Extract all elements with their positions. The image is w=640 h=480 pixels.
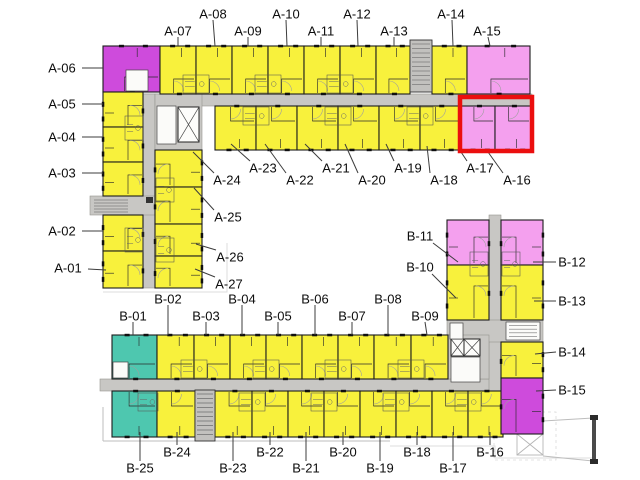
unit-label-B-18: B-18	[403, 445, 430, 460]
window-tick	[400, 45, 405, 48]
window-tick	[170, 45, 175, 48]
window-tick	[154, 271, 157, 276]
window-tick	[350, 45, 355, 48]
window-tick	[500, 359, 503, 364]
window-tick	[125, 334, 130, 337]
unit-B-15[interactable]	[501, 378, 543, 434]
window-tick	[201, 233, 204, 238]
window-tick	[221, 45, 226, 48]
window-tick	[542, 417, 545, 422]
window-tick	[448, 93, 453, 96]
window-tick	[143, 45, 148, 48]
unit-label-A-03: A-03	[48, 166, 75, 181]
unit-label-A-17: A-17	[466, 161, 493, 176]
unit-label-B-19: B-19	[366, 461, 393, 476]
unit-B-18[interactable]	[396, 391, 432, 437]
window-tick	[168, 436, 173, 439]
unit-label-A-24: A-24	[213, 173, 240, 188]
window-tick	[398, 105, 403, 108]
window-tick	[125, 436, 130, 439]
window-tick	[428, 378, 433, 381]
unit-A-17[interactable]	[461, 106, 495, 150]
window-tick	[278, 45, 283, 48]
unit-B-09[interactable]	[411, 335, 448, 379]
window-tick	[102, 186, 105, 191]
window-tick	[385, 436, 390, 439]
window-tick	[247, 378, 252, 381]
unit-B-24[interactable]	[157, 391, 195, 437]
unit-label-B-14: B-14	[558, 345, 585, 360]
unit-A-08[interactable]	[196, 46, 232, 94]
window-tick	[154, 167, 157, 172]
window-tick	[244, 149, 249, 152]
window-tick	[457, 45, 462, 48]
window-tick	[102, 172, 105, 177]
window-tick	[201, 265, 204, 270]
unit-label-A-15: A-15	[473, 24, 500, 39]
unit-A-16[interactable]	[495, 106, 531, 150]
corridor	[143, 94, 155, 288]
unit-B-25[interactable]	[112, 391, 157, 437]
window-tick	[285, 149, 290, 152]
window-tick	[327, 334, 332, 337]
window-tick	[174, 378, 179, 381]
window-tick	[484, 390, 489, 393]
window-tick	[406, 436, 411, 439]
window-tick	[277, 436, 282, 439]
window-tick	[102, 261, 105, 266]
unit-label-B-05: B-05	[264, 309, 291, 324]
window-tick	[262, 436, 267, 439]
service-room	[113, 362, 128, 378]
unit-label-A-16: A-16	[503, 173, 530, 188]
window-tick	[392, 93, 397, 96]
window-tick	[442, 45, 447, 48]
unit-B-23[interactable]	[215, 391, 252, 437]
unit-label-B-04: B-04	[228, 292, 255, 307]
unit-label-A-20: A-20	[358, 173, 385, 188]
window-tick	[142, 108, 145, 113]
unit-A-19[interactable]	[379, 106, 420, 150]
unit-label-A-05: A-05	[48, 97, 75, 112]
unit-B-12[interactable]	[501, 220, 543, 265]
unit-B-10[interactable]	[447, 265, 489, 320]
unit-label-A-01: A-01	[54, 261, 81, 276]
window-tick	[102, 117, 105, 122]
unit-A-22[interactable]	[256, 106, 297, 150]
window-tick	[512, 105, 517, 108]
unit-label-A-14: A-14	[437, 7, 464, 22]
unit-label-B-09: B-09	[411, 309, 438, 324]
window-tick	[357, 93, 362, 96]
unit-A-03[interactable]	[103, 162, 143, 196]
window-tick	[437, 334, 442, 337]
unit-A-14[interactable]	[432, 46, 467, 94]
window-tick	[225, 436, 230, 439]
window-tick	[102, 240, 105, 245]
window-tick	[241, 436, 246, 439]
window-tick	[329, 45, 334, 48]
service-room	[450, 323, 463, 339]
window-tick	[500, 241, 503, 246]
window-tick	[305, 390, 310, 393]
walkway-door	[146, 197, 153, 203]
window-tick	[242, 45, 247, 48]
window-tick	[542, 280, 545, 285]
unit-B-16[interactable]	[468, 391, 503, 437]
unit-label-B-08: B-08	[374, 292, 401, 307]
unit-label-B-13: B-13	[558, 294, 585, 309]
unit-label-B-02: B-02	[154, 292, 181, 307]
window-tick	[211, 378, 216, 381]
window-tick	[269, 390, 274, 393]
window-tick	[321, 93, 326, 96]
unit-A-15[interactable]	[467, 46, 530, 94]
window-tick	[201, 213, 204, 218]
window-tick	[431, 149, 436, 152]
unit-A-24[interactable]	[155, 150, 202, 187]
window-tick	[446, 233, 449, 238]
window-tick	[349, 436, 354, 439]
window-tick	[341, 390, 346, 393]
unit-label-A-25: A-25	[214, 210, 241, 225]
unit-B-05[interactable]	[266, 335, 302, 379]
window-tick	[449, 149, 454, 152]
window-tick	[449, 390, 454, 393]
unit-label-B-22: B-22	[256, 445, 283, 460]
unit-label-A-08: A-08	[199, 7, 226, 22]
unit-label-B-10: B-10	[406, 260, 433, 275]
unit-B-08[interactable]	[374, 335, 411, 379]
window-tick	[365, 45, 370, 48]
window-tick	[283, 378, 288, 381]
unit-A-27[interactable]	[155, 256, 202, 288]
unit-A-20[interactable]	[338, 106, 379, 150]
unit-label-B-07: B-07	[338, 309, 365, 324]
window-tick	[232, 390, 237, 393]
leader-line-A-10	[286, 20, 287, 46]
unit-label-A-18: A-18	[430, 173, 457, 188]
window-tick	[204, 334, 209, 337]
window-tick	[142, 143, 145, 148]
corridor	[100, 379, 502, 391]
window-tick	[316, 105, 321, 108]
window-tick	[201, 176, 204, 181]
window-tick	[542, 252, 545, 257]
leader-line-A-14	[452, 20, 453, 46]
unit-label-B-20: B-20	[329, 445, 356, 460]
unit-B-19[interactable]	[360, 391, 396, 437]
window-tick	[213, 93, 218, 96]
window-tick	[142, 178, 145, 183]
unit-label-B-03: B-03	[192, 309, 219, 324]
unit-A-26[interactable]	[155, 224, 202, 256]
window-tick	[334, 436, 339, 439]
unit-label-B-24: B-24	[163, 445, 190, 460]
window-tick	[184, 436, 189, 439]
unit-label-A-12: A-12	[343, 7, 370, 22]
site-outline	[543, 418, 593, 421]
window-tick	[542, 394, 545, 399]
window-tick	[314, 45, 319, 48]
unit-B-03[interactable]	[194, 335, 230, 379]
unit-label-B-16: B-16	[476, 445, 503, 460]
unit-A-02[interactable]	[103, 215, 143, 251]
unit-A-01[interactable]	[103, 251, 143, 288]
window-tick	[102, 137, 105, 142]
window-tick	[446, 280, 449, 285]
unit-label-A-10: A-10	[272, 7, 299, 22]
window-tick	[363, 334, 368, 337]
unit-label-B-11: B-11	[407, 229, 434, 244]
window-tick	[355, 378, 360, 381]
service-room	[451, 357, 480, 382]
window-tick	[349, 149, 354, 152]
window-tick	[275, 105, 280, 108]
window-tick	[500, 291, 503, 296]
window-tick	[255, 334, 260, 337]
unit-label-A-23: A-23	[249, 161, 276, 176]
ramp-edge-cap	[590, 459, 598, 464]
window-tick	[442, 436, 447, 439]
unit-A-25[interactable]	[155, 187, 202, 224]
unit-label-B-21: B-21	[292, 461, 319, 476]
window-tick	[357, 105, 362, 108]
window-tick	[177, 93, 182, 96]
window-tick	[219, 334, 224, 337]
window-tick	[142, 268, 145, 273]
unit-A-05[interactable]	[103, 92, 143, 127]
unit-label-B-12: B-12	[558, 255, 585, 270]
window-tick	[413, 390, 418, 393]
floor-plan: A-06A-05A-04A-03A-02A-01A-07A-08A-09A-10…	[0, 0, 640, 480]
unit-B-07[interactable]	[338, 335, 374, 379]
window-tick	[285, 93, 290, 96]
window-tick	[175, 390, 180, 393]
window-tick	[257, 45, 262, 48]
unit-B-13[interactable]	[501, 265, 543, 320]
window-tick	[144, 334, 149, 337]
window-tick	[377, 390, 382, 393]
floor-plan-canvas: A-06A-05A-04A-03A-02A-01A-07A-08A-09A-10…	[0, 0, 640, 480]
unit-label-A-27: A-27	[215, 277, 242, 292]
unit-label-A-06: A-06	[48, 61, 75, 76]
window-tick	[386, 45, 391, 48]
window-tick	[488, 291, 491, 296]
unit-label-B-15: B-15	[558, 383, 585, 398]
window-tick	[446, 304, 449, 309]
window-tick	[102, 277, 105, 282]
window-tick	[391, 378, 396, 381]
window-tick	[493, 436, 498, 439]
service-room	[506, 322, 540, 340]
window-tick	[319, 378, 324, 381]
window-tick	[542, 304, 545, 309]
unit-B-21[interactable]	[288, 391, 324, 437]
unit-label-A-26: A-26	[216, 250, 243, 265]
window-tick	[457, 436, 462, 439]
window-tick	[408, 149, 413, 152]
window-tick	[511, 45, 516, 48]
unit-B-22[interactable]	[252, 391, 288, 437]
window-tick	[201, 278, 204, 283]
window-tick	[500, 404, 503, 409]
window-tick	[293, 45, 298, 48]
window-tick	[421, 436, 426, 439]
unit-B-04[interactable]	[230, 335, 266, 379]
service-room	[126, 70, 148, 91]
window-tick	[201, 246, 204, 251]
window-tick	[384, 334, 389, 337]
window-tick	[485, 45, 490, 48]
window-tick	[226, 149, 231, 152]
leader-line-A-12	[357, 20, 358, 46]
window-tick	[542, 367, 545, 372]
unit-label-A-19: A-19	[394, 161, 421, 176]
window-tick	[542, 233, 545, 238]
unit-A-21[interactable]	[297, 106, 338, 150]
window-tick	[421, 334, 426, 337]
unit-label-B-23: B-23	[219, 461, 246, 476]
unit-label-A-11: A-11	[308, 24, 335, 39]
window-tick	[390, 149, 395, 152]
leader-line-B-09	[425, 322, 427, 335]
corridor	[489, 215, 501, 392]
window-tick	[183, 334, 188, 337]
unit-B-02[interactable]	[157, 335, 194, 379]
unit-label-A-13: A-13	[380, 24, 407, 39]
service-room	[157, 106, 176, 144]
window-tick	[370, 436, 375, 439]
unit-label-B-01: B-01	[119, 309, 146, 324]
ramp-edge-cap	[590, 415, 598, 420]
window-tick	[119, 45, 124, 48]
unit-A-12[interactable]	[340, 46, 376, 94]
window-tick	[133, 390, 138, 393]
window-tick	[240, 334, 245, 337]
unit-label-B-06: B-06	[301, 292, 328, 307]
window-tick	[133, 378, 138, 381]
window-tick	[144, 436, 149, 439]
window-tick	[400, 334, 405, 337]
window-tick	[276, 334, 281, 337]
unit-A-04[interactable]	[103, 127, 143, 162]
window-tick	[102, 152, 105, 157]
unit-B-14[interactable]	[501, 342, 543, 378]
unit-label-A-02: A-02	[48, 224, 75, 239]
unit-label-A-07: A-07	[164, 24, 191, 39]
unit-label-A-04: A-04	[48, 130, 75, 145]
window-tick	[313, 436, 318, 439]
window-tick	[291, 334, 296, 337]
window-tick	[234, 105, 239, 108]
window-tick	[298, 436, 303, 439]
window-tick	[102, 225, 105, 230]
window-tick	[488, 241, 491, 246]
window-tick	[477, 105, 482, 108]
unit-A-18[interactable]	[420, 106, 461, 150]
unit-label-A-09: A-09	[234, 24, 261, 39]
stairwell	[195, 390, 215, 441]
window-tick	[206, 45, 211, 48]
unit-A-13[interactable]	[376, 46, 410, 94]
unit-A-10[interactable]	[268, 46, 304, 94]
window-tick	[367, 149, 372, 152]
unit-label-B-17: B-17	[439, 461, 466, 476]
leader-line-A-08	[213, 20, 215, 46]
ramp-edge-bar	[592, 417, 596, 462]
window-tick	[154, 204, 157, 209]
unit-B-20[interactable]	[324, 391, 360, 437]
unit-B-06[interactable]	[302, 335, 338, 379]
unit-A-23[interactable]	[215, 106, 256, 150]
window-tick	[249, 93, 254, 96]
window-tick	[478, 436, 483, 439]
window-tick	[439, 105, 444, 108]
unit-B-17[interactable]	[432, 391, 468, 437]
unit-label-A-22: A-22	[286, 173, 313, 188]
unit-label-B-25: B-25	[126, 461, 153, 476]
unit-label-A-21: A-21	[322, 161, 349, 176]
window-tick	[185, 45, 190, 48]
window-tick	[326, 149, 331, 152]
